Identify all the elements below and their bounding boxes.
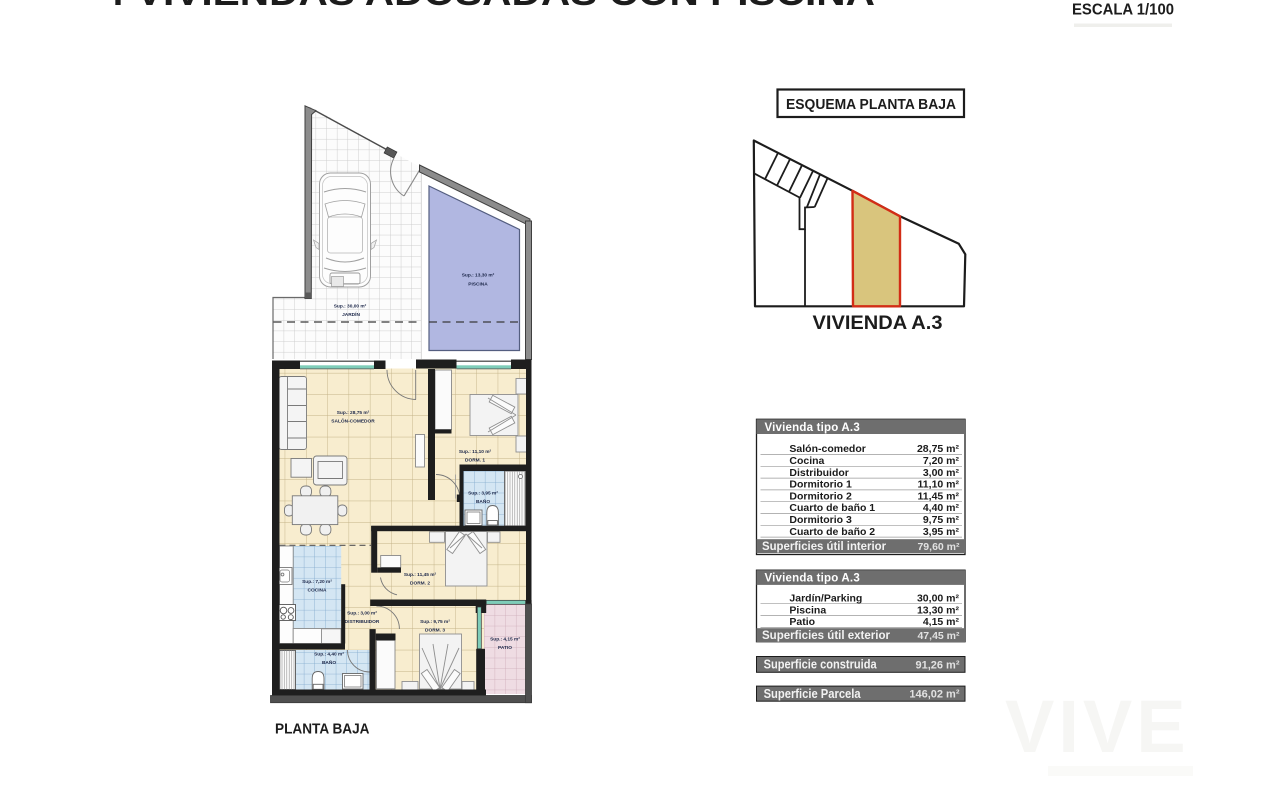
svg-text:ESQUEMA PLANTA BAJA: ESQUEMA PLANTA BAJA [786,97,957,113]
svg-text:Superficies útil interior: Superficies útil interior [762,541,887,553]
svg-text:PISCINA: PISCINA [468,282,488,288]
svg-text:Superficie Parcela: Superficie Parcela [764,687,862,701]
svg-text:Cuarto de baño 2: Cuarto de baño 2 [789,526,875,538]
svg-text:Piscina: Piscina [789,604,826,616]
svg-text:Dormitorio 3: Dormitorio 3 [789,514,852,526]
svg-text:DORM. 3: DORM. 3 [425,628,445,634]
svg-text:3,95 m²: 3,95 m² [923,526,960,538]
svg-text:91,26 m²: 91,26 m² [915,659,959,671]
svg-text:Distribuidor: Distribuidor [789,467,849,479]
svg-text:DORM. 2: DORM. 2 [410,581,430,587]
svg-text:Sup.: 11,45 m²: Sup.: 11,45 m² [404,572,437,578]
svg-text:79,60 m²: 79,60 m² [917,541,960,553]
svg-text:PLANTA BAJA: PLANTA BAJA [275,721,370,738]
svg-text:Sup.: 13,30 m²: Sup.: 13,30 m² [462,273,495,279]
svg-text:Sup.: 7,20 m²: Sup.: 7,20 m² [302,579,332,585]
svg-text:Dormitorio 2: Dormitorio 2 [789,490,852,502]
svg-text:Salón-comedor: Salón-comedor [789,443,865,455]
svg-text:11,10 m²: 11,10 m² [918,479,960,491]
svg-text:Cocina: Cocina [789,455,824,467]
svg-text:Dormitorio 1: Dormitorio 1 [789,479,852,491]
svg-text:DISTRIBUIDOR: DISTRIBUIDOR [345,619,380,625]
svg-text:4 VIVIENDAS ADOSADAS CON PISCI: 4 VIVIENDAS ADOSADAS CON PISCINA [102,0,875,13]
svg-text:Patio: Patio [789,616,815,628]
svg-text:13,30 m²: 13,30 m² [917,604,960,616]
svg-text:Sup.: 28,75 m²: Sup.: 28,75 m² [337,410,370,416]
svg-text:146,02 m²: 146,02 m² [909,689,959,701]
svg-text:Cuarto de baño 1: Cuarto de baño 1 [789,502,875,514]
svg-text:DORM. 1: DORM. 1 [465,458,485,464]
svg-text:Jardín/Parking: Jardín/Parking [789,592,862,604]
svg-text:Vivienda tipo A.3: Vivienda tipo A.3 [765,573,860,585]
svg-text:9,75 m²: 9,75 m² [923,514,960,526]
svg-text:47,45 m²: 47,45 m² [917,630,960,642]
svg-text:Sup.: 4,15 m²: Sup.: 4,15 m² [490,637,520,643]
svg-text:Sup.: 11,10 m²: Sup.: 11,10 m² [459,449,492,455]
svg-text:BAÑO: BAÑO [476,498,490,505]
svg-text:3,00 m²: 3,00 m² [923,467,960,479]
svg-text:Sup.: 3,00 m²: Sup.: 3,00 m² [347,611,377,617]
svg-text:Superficies útil exterior: Superficies útil exterior [762,630,891,642]
svg-text:Sup.: 9,75 m²: Sup.: 9,75 m² [420,619,450,625]
svg-text:4,40 m²: 4,40 m² [923,502,960,514]
svg-text:PATIO: PATIO [498,645,512,651]
svg-text:BAÑO: BAÑO [322,659,336,666]
svg-text:Superficie construida: Superficie construida [764,658,878,672]
svg-text:4,15 m²: 4,15 m² [923,616,960,628]
svg-text:COCINA: COCINA [308,588,327,594]
svg-text:Sup.: 30,00 m²: Sup.: 30,00 m² [334,304,367,310]
svg-text:30,00 m²: 30,00 m² [917,592,960,604]
svg-text:Sup.: 4,40 m²: Sup.: 4,40 m² [314,652,344,658]
svg-text:VIVE: VIVE [1005,685,1190,768]
svg-text:7,20 m²: 7,20 m² [923,455,960,467]
svg-text:Vivienda tipo A.3: Vivienda tipo A.3 [765,422,860,434]
svg-text:Sup.: 3,95 m²: Sup.: 3,95 m² [468,491,498,497]
svg-text:11,45 m²: 11,45 m² [918,490,960,502]
svg-text:ESCALA 1/100: ESCALA 1/100 [1072,2,1174,19]
svg-text:VIVIENDA A.3: VIVIENDA A.3 [813,313,943,334]
svg-text:28,75 m²: 28,75 m² [917,443,960,455]
